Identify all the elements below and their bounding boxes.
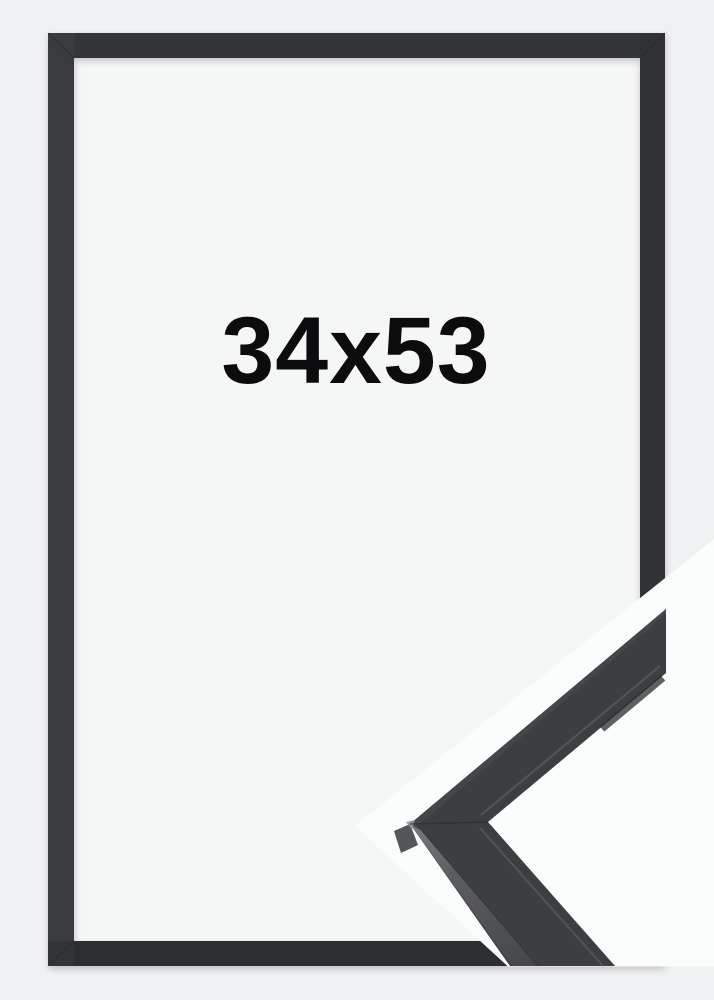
product-image: 34x53	[0, 0, 714, 1000]
frame-border-shading-left	[48, 33, 74, 966]
size-label: 34x53	[221, 298, 490, 404]
frame-product-graphic: 34x53	[0, 0, 714, 1000]
